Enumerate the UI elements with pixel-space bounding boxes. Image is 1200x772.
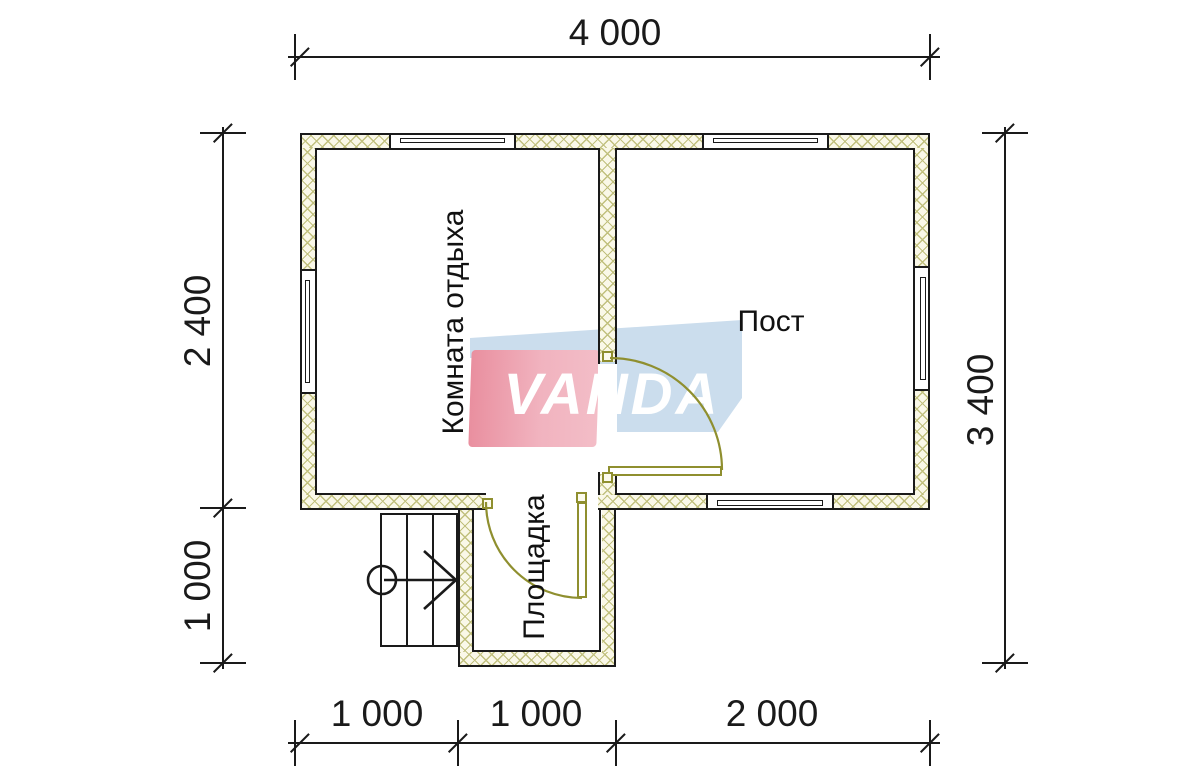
stair-step-line [432, 513, 434, 647]
window-jamb [827, 133, 829, 148]
dim-line-left [222, 127, 224, 669]
dim-line-right [1004, 127, 1006, 669]
dim-label-right: 3 400 [960, 354, 1002, 447]
dim-line-top [288, 56, 940, 58]
window-jamb [915, 389, 930, 391]
door-jamb [482, 498, 493, 509]
stairs [380, 513, 458, 647]
window-jamb [915, 266, 930, 268]
window-jamb [300, 269, 315, 271]
door-jamb [602, 472, 613, 483]
door-jamb [576, 492, 587, 503]
window-glass-top-right [713, 138, 818, 144]
window-glass-bottom [717, 500, 823, 506]
window-glass-left [305, 280, 311, 383]
interior-door-leaf [608, 466, 722, 476]
room-label-porch: Площадка [518, 494, 552, 639]
window-jamb [702, 133, 704, 148]
window-jamb [514, 133, 516, 148]
window-jamb [300, 392, 315, 394]
floor-plan-canvas: VANDA [0, 0, 1200, 772]
dim-label-left-upper: 2 400 [177, 275, 219, 368]
room-label-lounge: Комната отдыха [437, 210, 471, 435]
dim-extension [294, 720, 296, 766]
interior-doorway-opening [598, 364, 617, 472]
dim-label-bottom-mid: 1 000 [490, 693, 583, 735]
dim-label-bottom-left: 1 000 [331, 693, 424, 735]
window-jamb [706, 495, 708, 510]
window-glass-top-left [400, 138, 505, 144]
dim-label-left-lower: 1 000 [177, 540, 219, 633]
porch-door-leaf [577, 502, 587, 598]
room-label-post: Пост [738, 305, 805, 339]
door-jamb [602, 351, 613, 362]
stair-step-line [406, 513, 408, 647]
dim-extension [294, 34, 296, 80]
window-jamb [832, 495, 834, 510]
window-glass-right [920, 277, 926, 380]
window-jamb [389, 133, 391, 148]
dim-label-top: 4 000 [569, 12, 662, 54]
dim-label-bottom-right: 2 000 [726, 693, 819, 735]
